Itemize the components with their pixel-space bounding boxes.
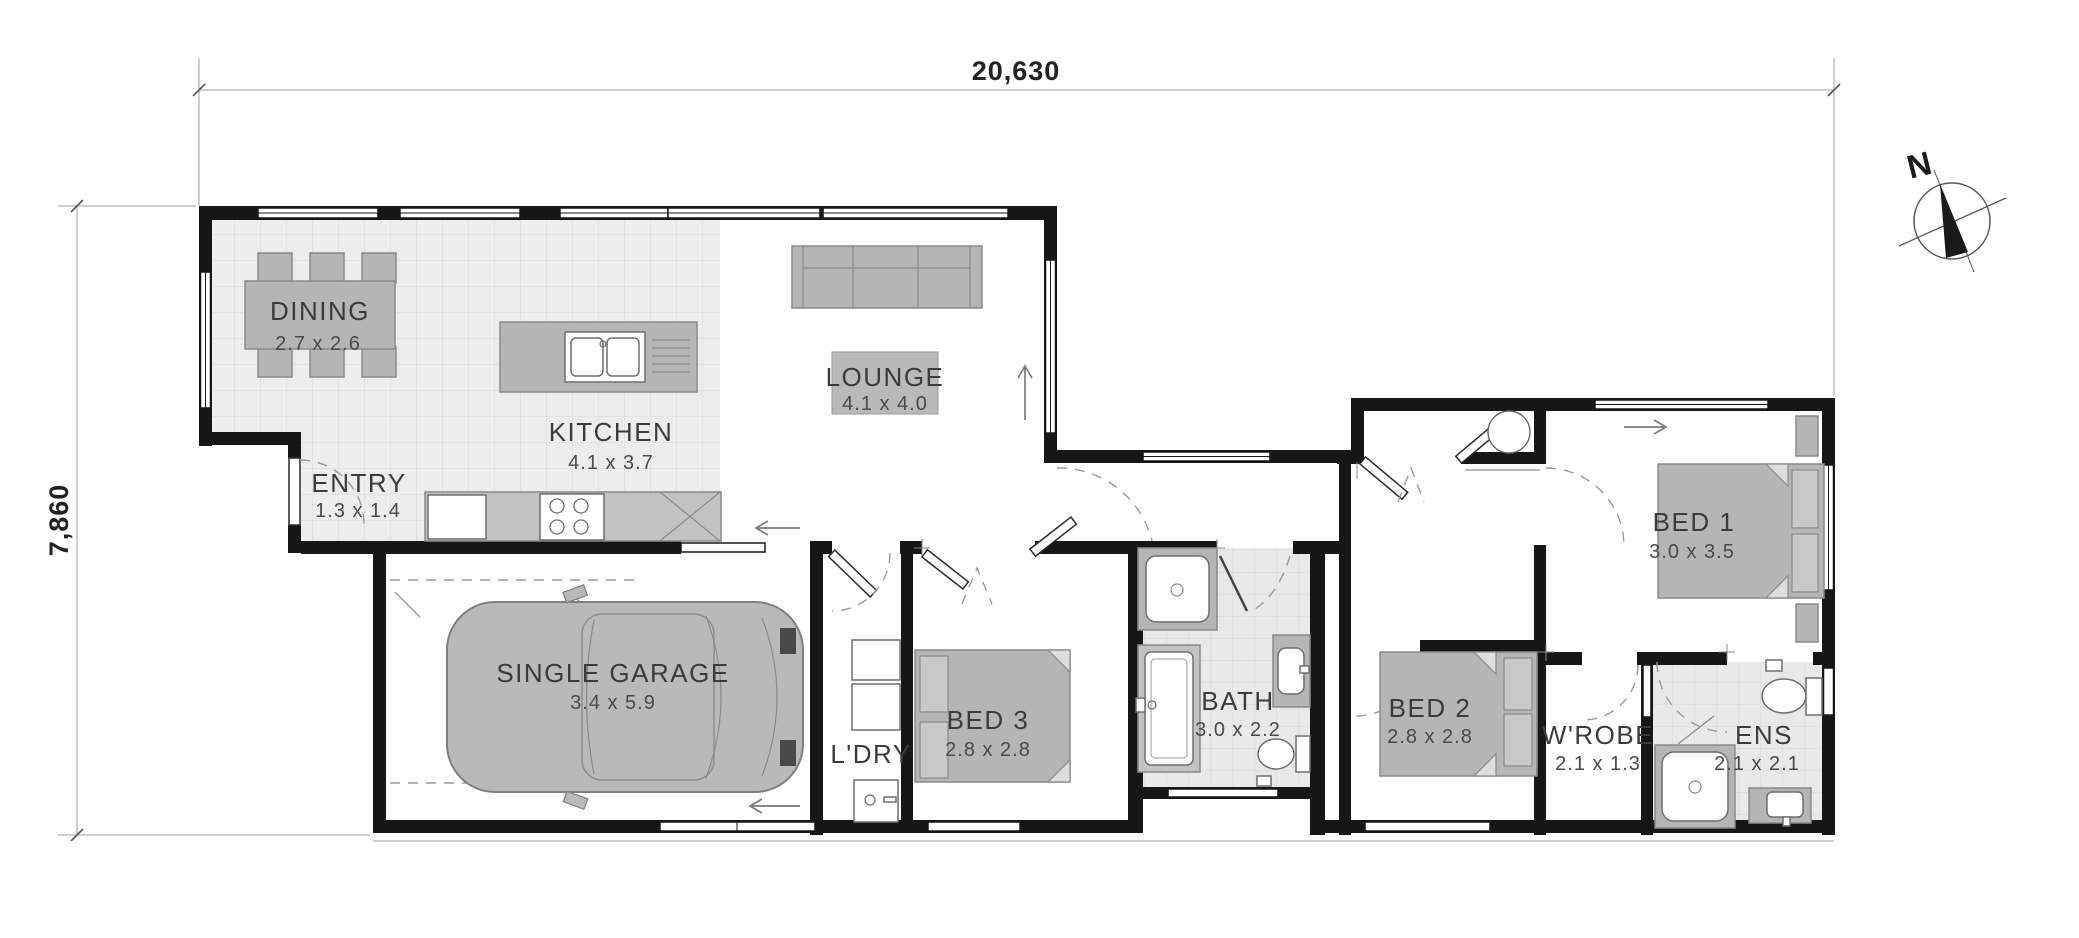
bedside-table xyxy=(1796,416,1818,456)
pillow xyxy=(1504,658,1532,710)
pillow xyxy=(1792,534,1818,592)
room-label-bed2: BED 2 xyxy=(1389,693,1472,723)
north-label: N xyxy=(1903,144,1935,186)
room-size-bed1: 3.0 x 3.5 xyxy=(1649,541,1735,563)
room-label-kitchen: KITCHEN xyxy=(549,417,674,447)
room-size-bed3: 2.8 x 2.8 xyxy=(945,739,1031,761)
north-compass-icon: N xyxy=(1899,144,2006,272)
room-label-ens: ENS xyxy=(1735,720,1793,750)
right-arrow-icon xyxy=(1624,420,1666,434)
kitchen-bench xyxy=(425,492,721,541)
pillow xyxy=(920,656,948,712)
up-arrow-icon xyxy=(1018,366,1032,420)
room-label-laundry: L'DRY xyxy=(830,739,911,769)
pillow xyxy=(920,722,948,778)
left-arrow-icon xyxy=(756,521,800,535)
room-label-garage: SINGLE GARAGE xyxy=(496,658,729,688)
laundry-fixtures xyxy=(852,640,900,822)
pillow xyxy=(1504,714,1532,766)
room-label-lounge: LOUNGE xyxy=(826,362,945,392)
bedside-table xyxy=(1796,604,1818,642)
car-headlight xyxy=(780,740,796,766)
overall-width-dimension: 20,630 xyxy=(972,56,1061,86)
room-label-bed1: BED 1 xyxy=(1653,507,1736,537)
toilet-bowl xyxy=(1258,739,1294,769)
room-size-bed2: 2.8 x 2.8 xyxy=(1387,726,1473,748)
floor-plan-canvas: 20,630 7,860 N xyxy=(0,0,2079,938)
room-size-lounge: 4.1 x 4.0 xyxy=(842,393,928,415)
floor-plan-drawing: 20,630 7,860 N xyxy=(0,0,2079,938)
car-headlight xyxy=(780,628,796,654)
room-size-dining: 2.7 x 2.6 xyxy=(275,333,361,355)
laundry-door-leaf xyxy=(829,550,877,597)
car-mirror xyxy=(563,791,587,809)
room-label-entry: ENTRY xyxy=(311,468,406,498)
bed3-door-leaf xyxy=(922,550,969,589)
room-label-wrobe: W'ROBE xyxy=(1542,720,1654,750)
room-size-entry: 1.3 x 1.4 xyxy=(315,500,401,522)
garage-left-arrow-icon xyxy=(750,799,800,813)
room-size-kitchen: 4.1 x 3.7 xyxy=(568,452,654,474)
toilet-cistern xyxy=(1296,736,1310,772)
car-mirror xyxy=(563,585,587,603)
overall-height-dimension: 7,860 xyxy=(44,484,74,557)
room-size-bath: 3.0 x 2.2 xyxy=(1195,719,1281,741)
pillow xyxy=(1792,470,1818,528)
room-label-bath: BATH xyxy=(1201,686,1274,716)
toilet-bowl xyxy=(1762,679,1806,713)
toilet-cistern xyxy=(1806,678,1822,715)
room-size-ens: 2.1 x 2.1 xyxy=(1714,753,1800,775)
room-label-bed3: BED 3 xyxy=(947,705,1030,735)
entry-door-leaf xyxy=(289,458,300,525)
lounge-sofa xyxy=(792,246,982,308)
room-label-dining: DINING xyxy=(270,296,370,326)
room-size-wrobe: 2.1 x 1.3 xyxy=(1555,753,1641,775)
linen-door-leaf xyxy=(1360,457,1408,499)
room-size-garage: 3.4 x 5.9 xyxy=(570,692,656,714)
kitchen-island xyxy=(500,322,697,392)
